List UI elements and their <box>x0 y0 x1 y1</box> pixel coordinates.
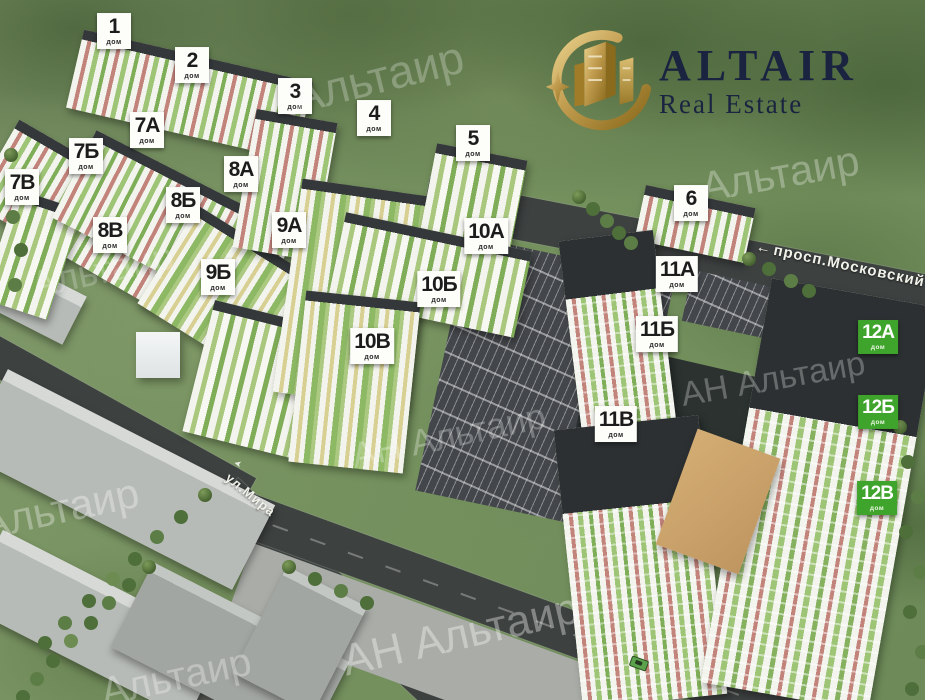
logo-title: ALTAIR <box>659 44 859 88</box>
marker-sublabel: дом <box>366 126 381 133</box>
building-marker-2: 2дом <box>175 47 209 83</box>
marker-number: 10Б <box>421 275 456 295</box>
marker-number: 10А <box>468 222 504 242</box>
marker-sublabel: дом <box>287 104 302 111</box>
building-marker-8А: 8Адом <box>224 156 258 192</box>
building-block <box>136 332 180 378</box>
site-plan: ул.Мира ←просп.Московский ➤ 1дом2дом3дом… <box>0 0 925 700</box>
marker-sublabel: дом <box>683 211 698 218</box>
marker-number: 8Б <box>171 191 196 211</box>
marker-number: 12В <box>861 485 893 503</box>
building-marker-8Б: 8Бдом <box>166 187 200 223</box>
marker-sublabel: дом <box>871 344 885 351</box>
left-arrow-icon: ← <box>754 238 773 258</box>
marker-sublabel: дом <box>14 195 29 202</box>
marker-sublabel: дом <box>102 243 117 250</box>
tree-row <box>142 560 156 574</box>
building-marker-10А: 10Адом <box>464 218 508 254</box>
building-marker-7В: 7Вдом <box>5 169 39 205</box>
building-marker-12А: 12Адом <box>858 320 898 354</box>
building-block <box>288 290 420 473</box>
marker-sublabel: дом <box>364 354 379 361</box>
logo-subtitle: Real Estate <box>659 90 859 120</box>
marker-sublabel: дом <box>184 73 199 80</box>
building-marker-6: 6дом <box>674 185 708 221</box>
marker-number: 11А <box>660 260 694 280</box>
marker-sublabel: дом <box>669 282 684 289</box>
tree-row <box>198 488 212 502</box>
building-marker-10В: 10Вдом <box>350 328 394 364</box>
marker-number: 11В <box>599 410 633 430</box>
marker-number: 9Б <box>206 263 231 283</box>
marker-sublabel: дом <box>431 297 446 304</box>
building-marker-11А: 11Адом <box>656 256 698 292</box>
building-marker-9А: 9Адом <box>272 212 306 248</box>
building-marker-8В: 8Вдом <box>93 217 127 253</box>
marker-number: 12Б <box>862 399 894 417</box>
building-marker-1: 1дом <box>97 13 131 49</box>
marker-sublabel: дом <box>608 432 623 439</box>
agency-logo: ALTAIR Real Estate <box>545 28 859 136</box>
marker-sublabel: дом <box>478 244 493 251</box>
building-marker-11Б: 11Бдом <box>636 316 678 352</box>
building-marker-3: 3дом <box>278 78 312 114</box>
marker-number: 1 <box>109 17 120 37</box>
marker-number: 7А <box>135 116 160 136</box>
marker-sublabel: дом <box>175 213 190 220</box>
marker-number: 8В <box>98 221 123 241</box>
marker-number: 2 <box>187 51 198 71</box>
marker-sublabel: дом <box>78 164 93 171</box>
gold-buildings-crescent-star-icon <box>545 28 653 136</box>
building-marker-4: 4дом <box>357 100 391 136</box>
building-marker-9Б: 9Бдом <box>201 259 235 295</box>
marker-sublabel: дом <box>649 342 664 349</box>
marker-number: 9А <box>277 216 302 236</box>
building-marker-10Б: 10Бдом <box>417 271 460 307</box>
building-marker-12В: 12Вдом <box>857 481 897 515</box>
marker-sublabel: дом <box>210 285 225 292</box>
tree-row <box>282 560 296 574</box>
tree-row <box>4 148 18 162</box>
building-marker-7Б: 7Бдом <box>69 138 103 174</box>
marker-number: 4 <box>369 104 380 124</box>
marker-sublabel: дом <box>281 238 296 245</box>
marker-number: 11Б <box>640 320 674 340</box>
marker-number: 8А <box>229 160 254 180</box>
marker-sublabel: дом <box>870 505 884 512</box>
building-marker-5: 5дом <box>456 125 490 161</box>
building-marker-12Б: 12Бдом <box>858 395 898 429</box>
marker-number: 12А <box>862 324 894 342</box>
tree-row <box>572 190 586 204</box>
marker-sublabel: дом <box>233 182 248 189</box>
marker-number: 10В <box>354 332 390 352</box>
marker-sublabel: дом <box>465 151 480 158</box>
marker-number: 7В <box>10 173 35 193</box>
marker-sublabel: дом <box>139 138 154 145</box>
marker-sublabel: дом <box>106 39 121 46</box>
marker-number: 5 <box>468 129 479 149</box>
building-marker-11В: 11Вдом <box>595 406 637 442</box>
marker-number: 7Б <box>74 142 99 162</box>
marker-number: 3 <box>290 82 301 102</box>
building-marker-7А: 7Адом <box>130 112 164 148</box>
marker-sublabel: дом <box>871 419 885 426</box>
marker-number: 6 <box>686 189 697 209</box>
